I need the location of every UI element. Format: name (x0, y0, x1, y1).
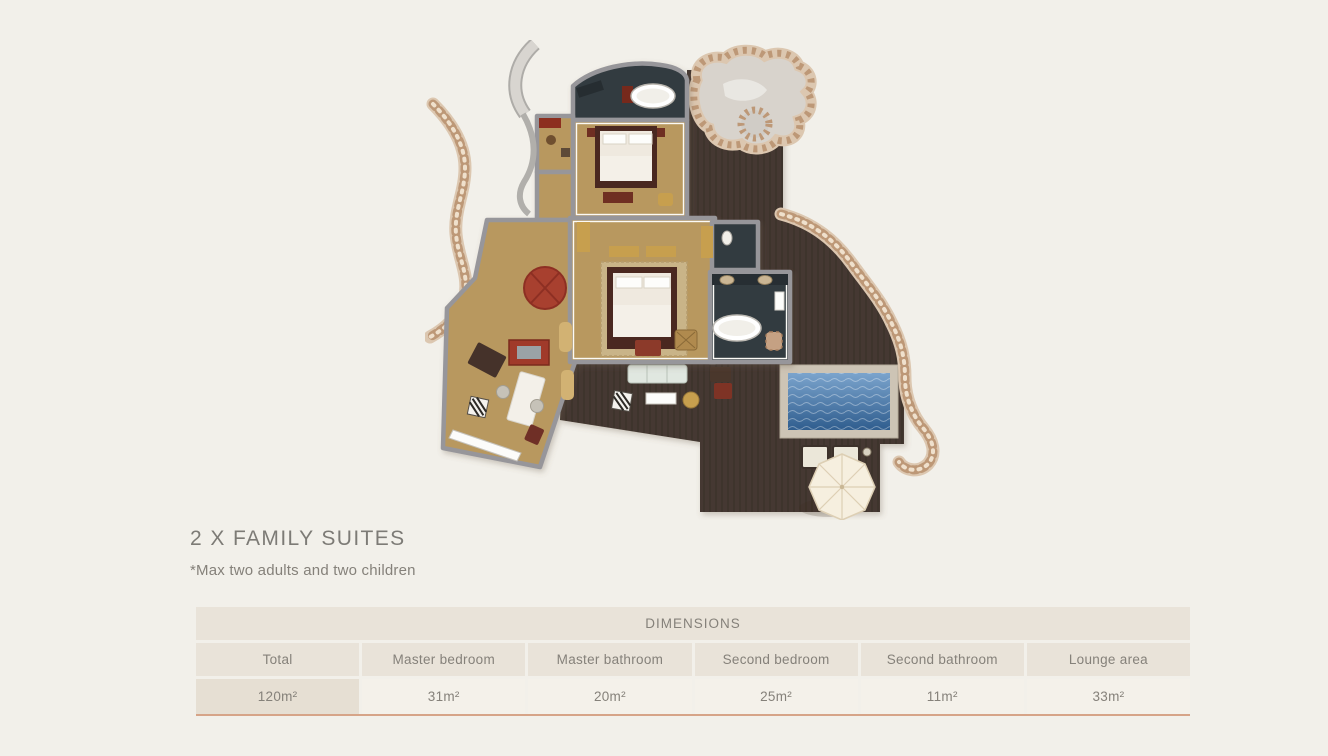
column-master-bathroom: Master bathroom (528, 643, 691, 676)
value-lounge-area: 33m² (1027, 679, 1190, 714)
headboard-bench-1 (609, 246, 639, 257)
column-second-bedroom: Second bedroom (695, 643, 858, 676)
side-table (863, 448, 871, 456)
value-second-bedroom: 25m² (695, 679, 858, 714)
round-rug (524, 267, 566, 309)
zebra-pouf (612, 391, 633, 412)
master-bathtub (713, 315, 761, 341)
floorplan-image (425, 40, 945, 520)
outdoor-coffee-table (646, 393, 676, 404)
dimensions-values-row: 120m² 31m² 20m² 25m² 11m² 33m² (196, 679, 1190, 714)
curved-chair-1 (559, 322, 572, 352)
second-bathtub (631, 84, 675, 108)
sink-1 (720, 276, 734, 285)
suite-page: { "heading": { "title": "2 X FAMILY SUIT… (0, 0, 1328, 756)
outdoor-stone-court (694, 50, 811, 149)
wc-room (712, 222, 758, 270)
deck-armchair-red (714, 383, 732, 399)
value-master-bathroom: 20m² (528, 679, 691, 714)
bedroom-chair (658, 193, 673, 206)
basket (675, 330, 697, 350)
column-lounge-area: Lounge area (1027, 643, 1190, 676)
dimensions-columns-row: Total Master bedroom Master bathroom Sec… (196, 643, 1190, 676)
curved-entry-walls (515, 44, 535, 214)
column-total: Total (196, 643, 359, 676)
curved-chair-2 (561, 370, 574, 400)
lounge-coffee-table (509, 340, 549, 365)
sink-2 (758, 276, 772, 285)
gold-pouf (683, 392, 699, 408)
dimensions-header-row: DIMENSIONS (196, 607, 1190, 640)
value-second-bathroom: 11m² (861, 679, 1024, 714)
floorplan-svg (425, 40, 945, 520)
toilet (722, 231, 732, 245)
outdoor-sofa (628, 365, 687, 383)
dimensions-title: DIMENSIONS (196, 607, 1190, 640)
bed-end-bench (603, 192, 633, 203)
foyer-table (546, 135, 556, 145)
bench-right (701, 226, 713, 258)
bed-ottoman (635, 340, 661, 356)
towel-stack (775, 292, 784, 310)
stone-stool (766, 332, 782, 350)
bench-left (577, 222, 590, 252)
second-bed (587, 126, 665, 188)
column-master-bedroom: Master bedroom (362, 643, 525, 676)
occupancy-note: *Max two adults and two children (190, 562, 416, 579)
suite-heading: 2 X FAMILY SUITES *Max two adults and tw… (190, 527, 416, 579)
dimensions-table: DIMENSIONS Total Master bedroom Master b… (196, 607, 1190, 716)
column-second-bathroom: Second bathroom (861, 643, 1024, 676)
value-total: 120m² (196, 679, 359, 714)
value-master-bedroom: 31m² (362, 679, 525, 714)
zebra-pouf-lounge (467, 396, 488, 417)
desk-chair-2 (531, 400, 544, 413)
plunge-pool (780, 365, 898, 438)
foyer-chair (561, 148, 570, 157)
deck-armchair-brown (710, 367, 731, 382)
desk-chair-1 (497, 386, 510, 399)
outdoor-shower-ring (741, 110, 769, 138)
page-title: 2 X FAMILY SUITES (190, 527, 416, 551)
headboard-bench-2 (646, 246, 676, 257)
foyer-console (539, 118, 561, 128)
corridor (537, 172, 573, 220)
